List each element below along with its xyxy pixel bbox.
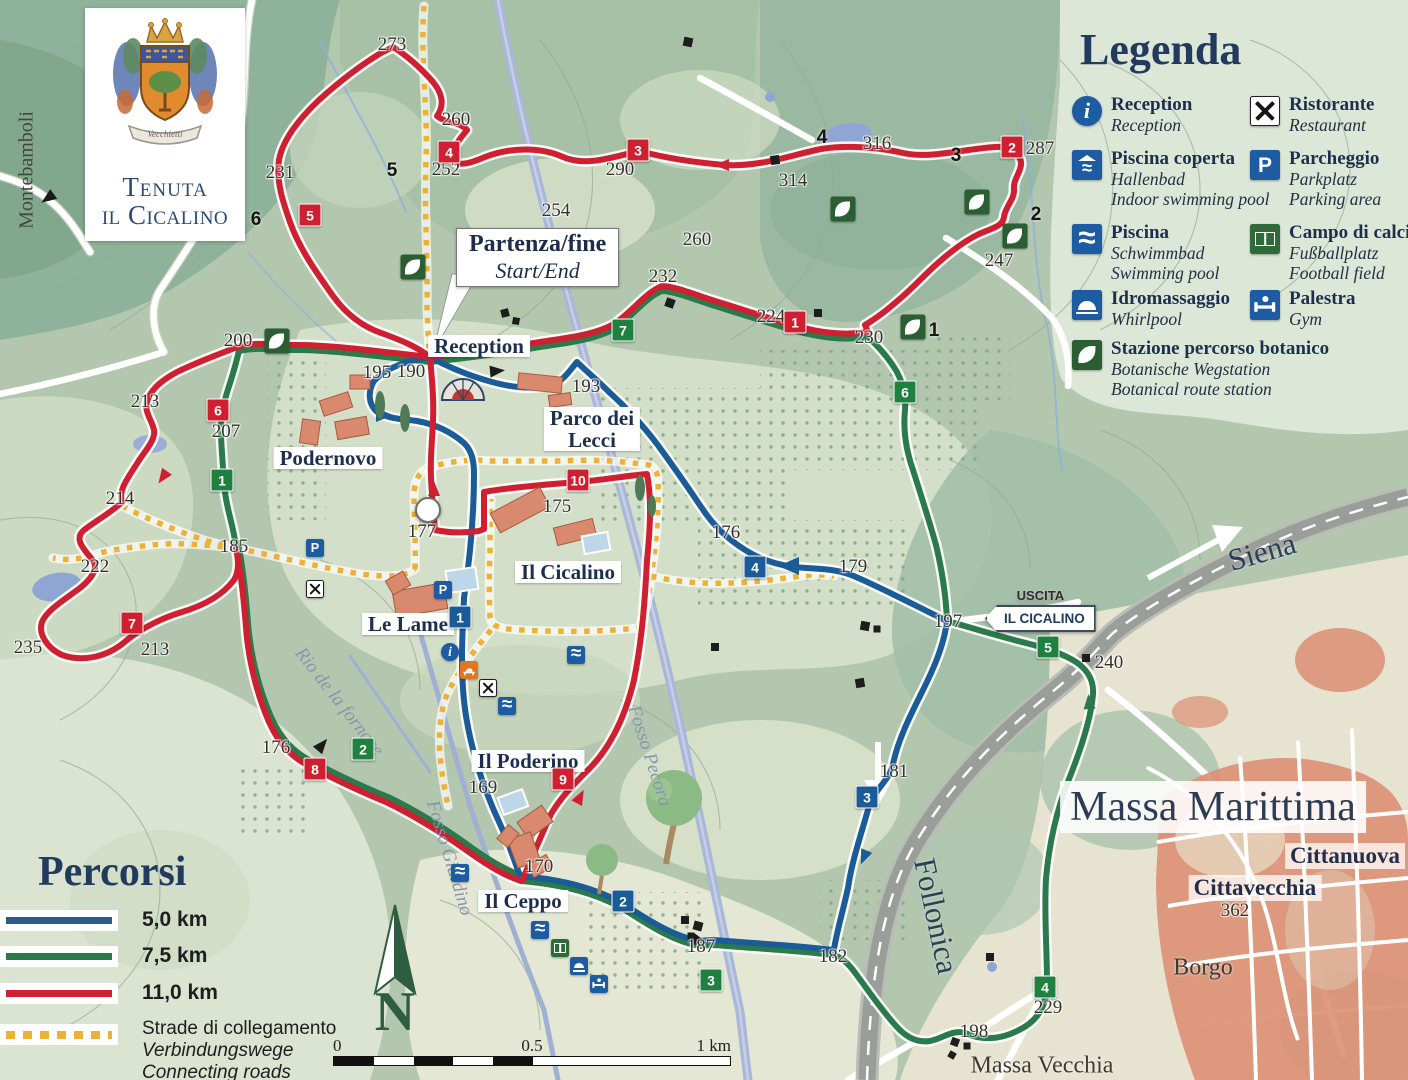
legend-item-parking: PParcheggioParkplatzParking area [1250,148,1381,210]
elevation-label: 214 [106,488,135,510]
elevation-label: 230 [855,327,884,349]
dome-shape [574,963,584,968]
elevation-label: 231 [266,162,295,184]
legend-item-subtitle: Football field [1289,263,1408,283]
route-swatch-line [6,917,112,924]
botanical-station-number: 1 [929,320,940,342]
info-icon: i [441,643,459,661]
pool-icon: ≈ [451,864,469,882]
legend-item-text: PiscinaSchwimmbadSwimming pool [1111,222,1219,284]
place-label-il-cicalino: Il Cicalino [515,561,621,583]
red-route-marker-1: 1 [784,311,807,334]
legend-item-botanical: Stazione percorso botanicoBotanische Weg… [1072,338,1329,400]
legend-item-title: Parcheggio [1289,148,1381,169]
elevation-label: 170 [525,856,554,878]
connecting-roads-row: Strade di collegamentoVerbindungswegeCon… [0,1018,336,1080]
parking-icon: P [434,581,452,599]
parking-icon: P [306,539,324,557]
base-line [1076,312,1098,314]
blue-route-marker-4: 4 [744,556,767,579]
place-label-massa-vecchia: Massa Vecchia [971,1053,1114,1080]
elevation-label: 222 [81,556,110,578]
botanical-station-number: 6 [251,209,262,231]
legend-item-subtitle: Whirlpool [1111,309,1230,329]
botanical-station-number: 3 [951,145,962,167]
leaf-shape [1078,346,1095,363]
sunbed-glyph [461,662,477,678]
legend-title: Legenda [1080,24,1241,75]
elevation-label: 193 [572,376,601,398]
gym-icon [590,975,608,993]
leaf-shape [406,260,421,275]
pool-glyph: ≈ [535,920,545,939]
pool-glyph: ≈ [455,863,465,882]
legend-item-title: Piscina [1111,222,1219,243]
route-swatch [0,910,118,931]
legend-item-title: Reception [1111,94,1192,115]
elevation-label: 176 [712,522,741,544]
botanical-station-icon [901,315,926,340]
legend-item-title: Stazione percorso botanico [1111,338,1329,359]
elevation-label: 362 [1221,900,1250,922]
legend-item-subtitle: Parkplatz [1289,169,1381,189]
elevation-label: 200 [224,330,253,352]
green-route-marker-4: 4 [1034,976,1057,999]
legend-item-info: iReceptionReception [1072,94,1192,135]
legend-item-text: Campo di calcioFußballplatzFootball fiel… [1289,222,1408,284]
route-length-label: 7,5 km [142,944,207,968]
info-glyph: i [448,645,452,658]
legend-item-text: IdromassaggioWhirlpool [1111,288,1230,329]
elevation-label: 235 [14,637,43,659]
legend-item-title: Ristorante [1289,94,1374,115]
start-end-callout: Partenza/fine Start/End [456,228,619,287]
connecting-swatch [0,1024,118,1045]
parking-glyph: P [439,584,447,597]
highway-exit-sign: USCITA IL CICALINO [985,588,1096,632]
compass-north-letter: N [375,980,415,1044]
exit-sign-top: USCITA [985,588,1096,603]
place-label-le-lame: Le Lame [362,613,454,635]
botanical-icon [1072,340,1102,370]
place-label-fosso-pecora: Fosso Pecora [622,703,675,810]
scale-mid: 0.5 [521,1036,542,1056]
botanical-station-icon [265,329,290,354]
legend-item-subtitle: Swimming pool [1111,263,1219,283]
elevation-label: 213 [131,391,160,413]
legend-item-restaurant: RistoranteRestaurant [1250,94,1374,135]
green-route-marker-2: 2 [352,738,375,761]
leaf-shape [970,195,985,210]
legend-item-whirlpool: IdromassaggioWhirlpool [1072,288,1230,329]
pool-icon: ≈ [531,921,549,939]
exit-sign-main: IL CICALINO [985,605,1096,632]
leaf-shape [270,334,285,349]
elevation-label: 195 [363,362,392,384]
route-swatch [0,983,118,1004]
pool-glyph: ≈ [571,645,581,664]
place-label-reception: Reception [428,335,530,357]
place-label-siena: Siena [1224,525,1300,579]
legend-item-title: Idromassaggio [1111,288,1230,309]
green-route-marker-1: 1 [211,469,234,492]
route-legend-row: 11,0 km [0,981,218,1005]
leaf-shape [1008,229,1023,244]
legend-item-text: ParcheggioParkplatzParking area [1289,148,1381,210]
callout-line1: Partenza/fine [469,231,606,258]
red-route-marker-7: 7 [121,612,144,635]
elevation-label: 287 [1026,138,1055,160]
estate-name-line2: il Cicalino [85,201,245,229]
legend-item-subtitle: Parking area [1289,189,1381,209]
legend-item-subtitle: Indoor swimming pool [1111,189,1269,209]
botanical-station-number: 4 [817,127,828,149]
blue-route-marker-2: 2 [612,890,635,913]
elevation-label: 316 [863,133,892,155]
red-route-marker-10: 10 [567,469,590,492]
connecting-roads-line: Connecting roads [142,1062,336,1080]
legend-item-pool: ≈PiscinaSchwimmbadSwimming pool [1072,222,1219,284]
elevation-label: 185 [220,536,249,558]
legend-item-text: PalestraGym [1289,288,1355,329]
route-length-label: 11,0 km [142,981,218,1005]
legend-item-title: Palestra [1289,288,1355,309]
legend-item-subtitle: Botanische Wegstation [1111,359,1329,379]
legend-item-subtitle: Botanical route station [1111,379,1329,399]
connecting-roads-line: Verbindungswege [142,1040,336,1062]
legend-item-subtitle: Hallenbad [1111,169,1269,189]
elevation-label: 176 [262,737,291,759]
place-label-cittanuova: Cittanuova [1285,843,1405,869]
elevation-label: 175 [543,496,572,518]
elevation-label: 169 [469,777,498,799]
pool-icon: ≈ [1072,224,1102,254]
blue-route-marker-3: 3 [856,786,879,809]
dome-shape [1078,301,1095,310]
elevation-label: 290 [606,159,635,181]
legend-item-title: Piscina coperta [1111,148,1269,169]
weightlifter-glyph [1252,292,1278,318]
legend-item-gym: PalestraGym [1250,288,1355,329]
place-label-montebamboli: Montebamboli [16,111,39,229]
parking-glyph: P [1258,155,1272,176]
legend-item-subtitle: Gym [1289,309,1355,329]
legend-item-title: Campo di calcio [1289,222,1408,243]
legend-item-subtitle: Schwimmbad [1111,243,1219,263]
weightlifter-glyph [591,976,606,991]
route-legend-row: 5,0 km [0,908,207,932]
goal-shape [1255,232,1275,247]
green-route-marker-6: 6 [894,381,917,404]
crest-banner-text: Vecchietti [148,129,183,139]
elevation-label: 229 [1034,997,1063,1019]
gym-icon [1250,290,1280,320]
leaf-shape [836,202,851,217]
red-route-marker-4: 4 [438,141,461,164]
info-glyph: i [1084,100,1090,122]
elevation-label: 273 [378,34,407,56]
place-label-podernovo: Podernovo [274,447,383,469]
legend-item-text: Stazione percorso botanicoBotanische Weg… [1111,338,1329,400]
place-label-cittavecchia: Cittavecchia [1189,875,1322,901]
trail-map: 2732602522312542902603162873142472322242… [0,0,1408,1080]
elevation-label: 224 [757,306,786,328]
legend-item-text: Piscina copertaHallenbadIndoor swimming … [1111,148,1269,210]
green-route-marker-5: 5 [1037,636,1060,659]
botanical-station-number: 5 [387,160,398,182]
whirlpool-icon [1072,290,1102,320]
leaf-shape [906,320,921,335]
reception-dot-icon [415,497,441,523]
elevation-label: 232 [649,266,678,288]
indoor-pool-icon: ≈ [1072,150,1102,180]
elevation-label: 260 [442,109,471,131]
pool-glyph: ≈ [1078,222,1095,254]
elevation-label: 182 [819,946,848,968]
route-swatch-line [6,953,112,960]
routes-legend-title: Percorsi [38,848,186,896]
place-label-massa-marittima: Massa Marittima [1060,781,1366,833]
place-label-il-ceppo: Il Ceppo [478,890,568,912]
info-icon: i [1072,96,1102,126]
route-swatch-line [6,990,112,997]
connecting-roads-text: Strade di collegamentoVerbindungswegeCon… [142,1018,336,1080]
scale-end: 1 km [697,1036,731,1056]
legend-item-text: ReceptionReception [1111,94,1192,135]
scale-bar: 0 0.5 1 km [333,1036,731,1066]
elevation-label: 254 [542,200,571,222]
elevation-label: 177 [408,521,437,543]
red-route-marker-6: 6 [207,399,230,422]
elevation-label: 197 [934,611,963,633]
indoor-pool-glyph: ≈ [1082,159,1092,178]
red-route-marker-3: 3 [627,139,650,162]
connecting-swatch-dashes [6,1031,112,1039]
green-route-marker-3: 3 [700,969,723,992]
elevation-label: 213 [141,639,170,661]
elevation-label: 190 [397,361,426,383]
green-route-marker-7: 7 [612,319,635,342]
base-line [573,970,586,972]
restaurant-icon [479,679,497,697]
restaurant-icon [1250,96,1280,126]
legend-item-football: Campo di calcioFußballplatzFootball fiel… [1250,222,1408,284]
elevation-label: 179 [839,556,868,578]
scale-start: 0 [333,1036,342,1056]
elevation-label: 314 [779,170,808,192]
football-icon [1250,224,1280,254]
elevation-label: 198 [960,1021,989,1043]
botanical-station-icon [401,255,426,280]
route-legend-row: 7,5 km [0,944,207,968]
coat-of-arms: Vecchietti [105,14,225,164]
place-label-borgo: Borgo [1173,955,1233,982]
legend-item-indoor-pool: ≈Piscina copertaHallenbadIndoor swimming… [1072,148,1269,210]
red-route-marker-9: 9 [552,768,575,791]
elevation-label: 207 [212,421,241,443]
estate-name-line1: Tenuta [85,173,245,201]
connecting-roads-line: Strade di collegamento [142,1018,336,1040]
botanical-station-icon [1003,224,1028,249]
red-route-marker-8: 8 [304,758,327,781]
parking-icon: P [1250,150,1280,180]
botanical-station-icon [965,190,990,215]
football-icon [551,939,569,957]
red-route-marker-2: 2 [1001,136,1024,159]
legend-item-subtitle: Restaurant [1289,115,1374,135]
place-label-fosso-giardino: Fosso Giardino [421,798,477,918]
elevation-label: 240 [1095,652,1124,674]
pool-icon: ≈ [567,646,585,664]
botanical-station-icon [831,197,856,222]
route-length-label: 5,0 km [142,908,207,932]
goal-shape [554,943,567,953]
pool-glyph: ≈ [502,696,512,715]
legend-item-text: RistoranteRestaurant [1289,94,1374,135]
restaurant-icon [306,580,324,598]
blue-route-marker-1: 1 [449,606,472,629]
place-label-follonica: Follonica [906,855,966,977]
legend-item-subtitle: Reception [1111,115,1192,135]
parking-glyph: P [311,542,319,555]
callout-line2: Start/End [469,258,606,284]
estate-logo: Vecchietti Tenuta il Cicalino [85,8,245,241]
scale-bar-segments [333,1056,731,1066]
elevation-label: 247 [985,250,1014,272]
elevation-label: 260 [683,229,712,251]
route-swatch [0,946,118,967]
sunbed-icon [460,661,478,679]
whirlpool-icon [570,957,588,975]
elevation-label: 187 [687,936,716,958]
legend-item-subtitle: Fußballplatz [1289,243,1408,263]
botanical-station-number: 2 [1031,204,1042,226]
red-route-marker-5: 5 [299,204,322,227]
pool-icon: ≈ [498,697,516,715]
place-label-parco-dei-lecci: Parco deiLecci [544,407,640,451]
elevation-label: 181 [880,761,909,783]
